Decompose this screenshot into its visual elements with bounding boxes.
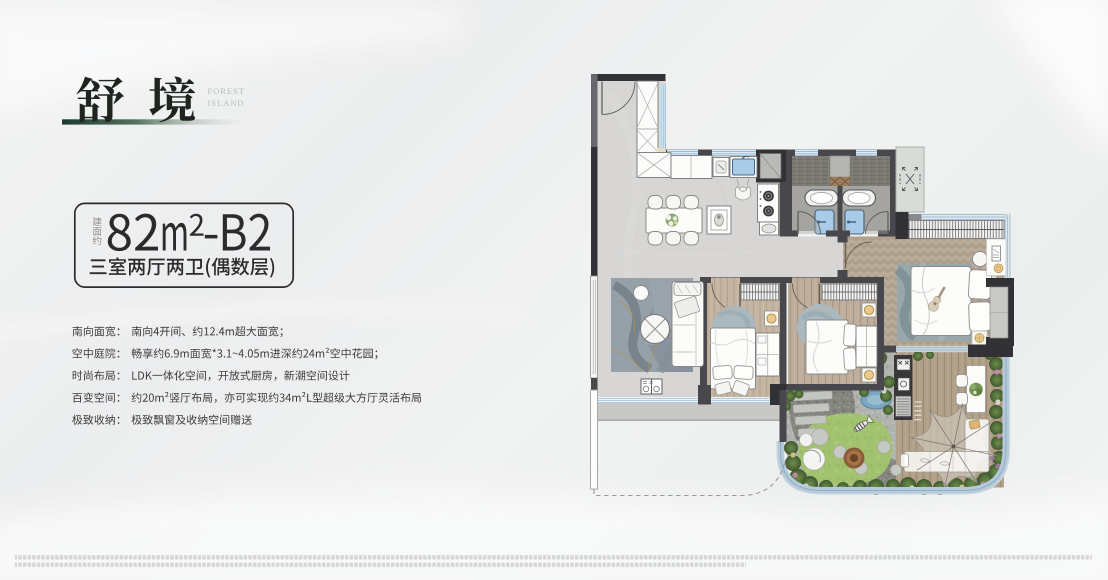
svg-text:FOREST: FOREST xyxy=(208,86,245,96)
svg-text:ISLAND: ISLAND xyxy=(208,98,245,108)
